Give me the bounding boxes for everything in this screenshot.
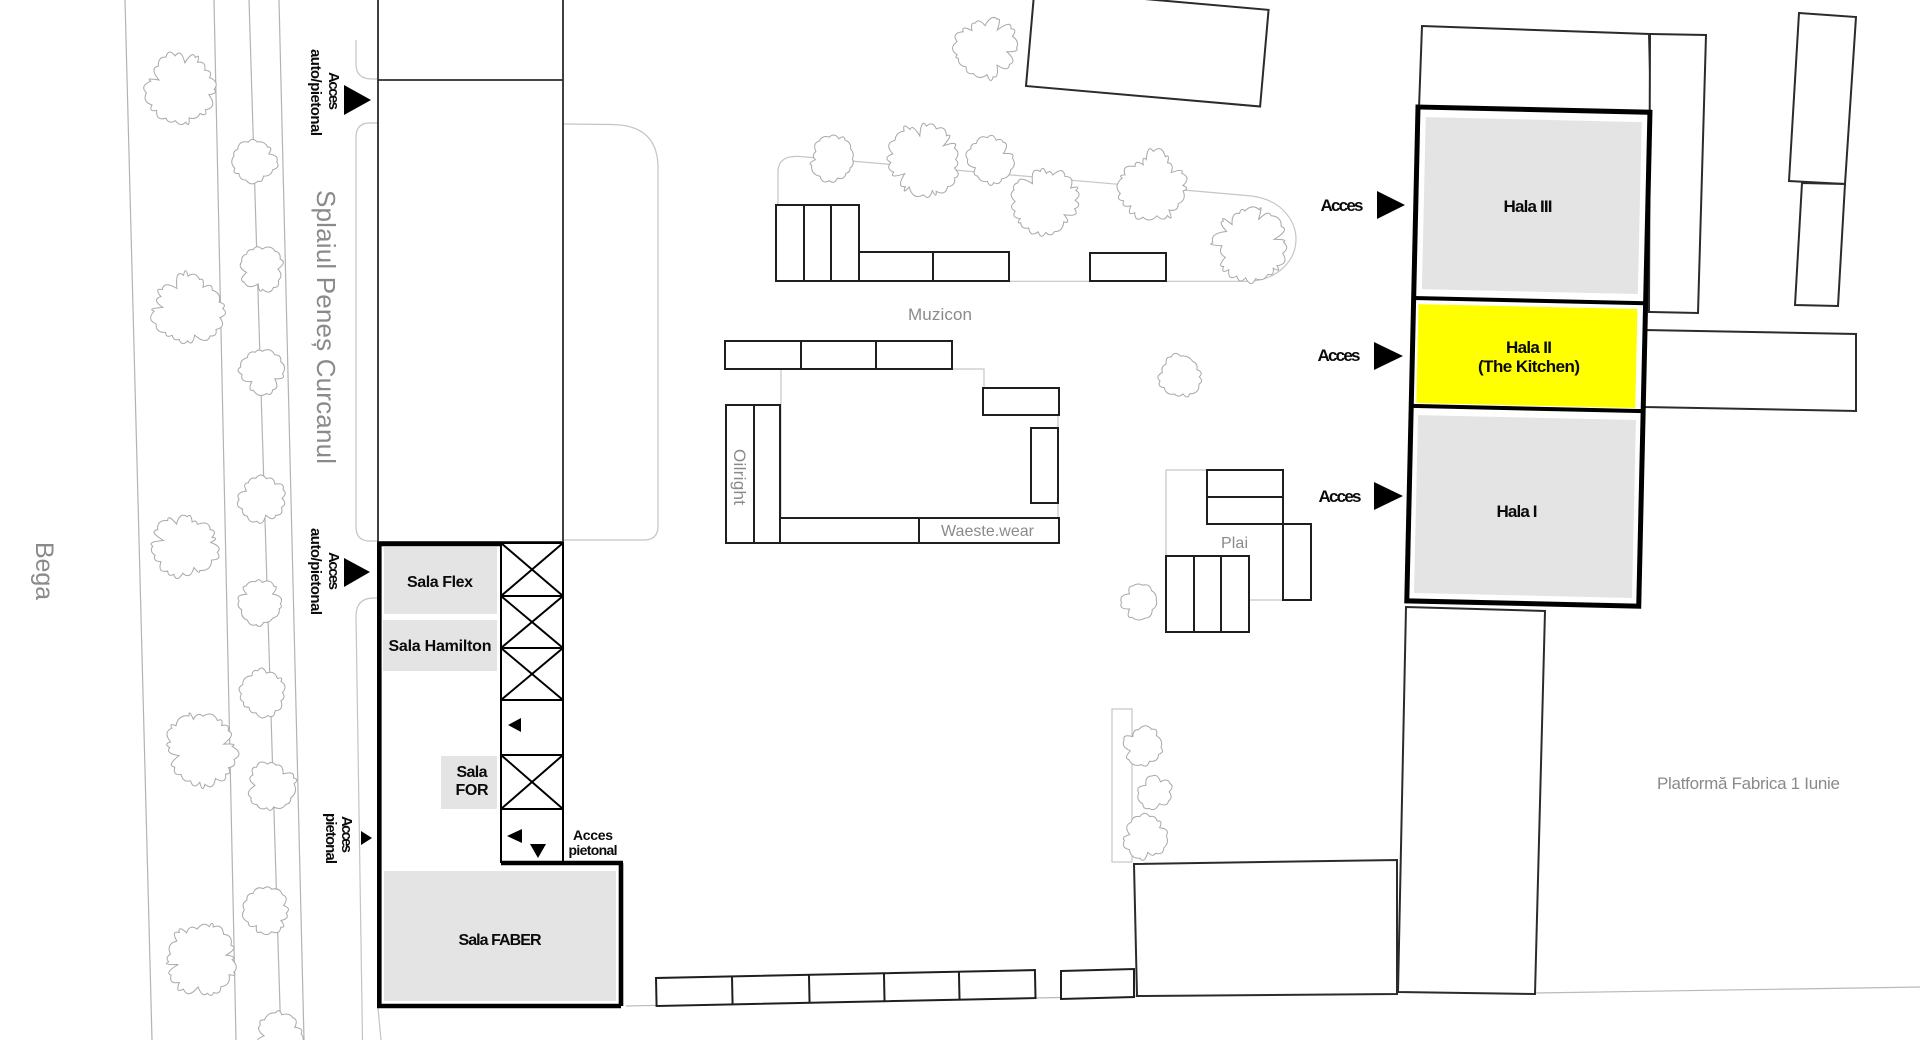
svg-text:Hala II: Hala II <box>1506 338 1552 357</box>
svg-text:Acces: Acces <box>325 72 342 110</box>
svg-text:Platformă Fabrica 1 Iunie: Platformă Fabrica 1 Iunie <box>1657 774 1840 793</box>
svg-text:Bega: Bega <box>30 542 58 600</box>
svg-text:Sala FABER: Sala FABER <box>459 932 542 949</box>
svg-text:Acces: Acces <box>1318 346 1361 365</box>
svg-text:Acces: Acces <box>573 827 613 843</box>
svg-text:pietonal: pietonal <box>322 813 339 864</box>
svg-text:pietonal: pietonal <box>569 842 618 858</box>
svg-text:auto/pietonal: auto/pietonal <box>307 49 324 136</box>
svg-text:Waeste.wear: Waeste.wear <box>941 523 1035 540</box>
svg-text:Muzicon: Muzicon <box>908 305 972 324</box>
svg-text:auto/pietonal: auto/pietonal <box>307 528 324 615</box>
svg-text:Hala I: Hala I <box>1497 502 1538 521</box>
svg-text:Acces: Acces <box>1321 196 1364 215</box>
svg-text:Sala: Sala <box>457 764 488 781</box>
svg-text:Hala III: Hala III <box>1504 197 1553 216</box>
svg-text:Splaiul Peneș Curcanul: Splaiul Peneș Curcanul <box>311 190 341 464</box>
svg-text:Acces: Acces <box>338 816 355 853</box>
svg-text:Sala Flex: Sala Flex <box>407 574 473 591</box>
svg-text:Acces: Acces <box>325 552 342 590</box>
svg-text:Acces: Acces <box>1319 487 1362 506</box>
svg-text:Oilright: Oilright <box>730 449 749 505</box>
svg-text:FOR: FOR <box>456 782 489 799</box>
svg-text:Plai: Plai <box>1221 535 1248 552</box>
svg-text:(The Kitchen): (The Kitchen) <box>1478 357 1580 376</box>
svg-text:Sala Hamilton: Sala Hamilton <box>389 638 492 655</box>
